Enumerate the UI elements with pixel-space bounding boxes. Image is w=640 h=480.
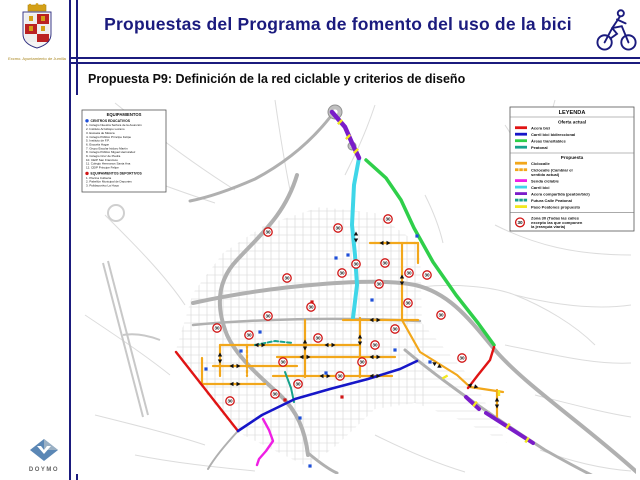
map-legend: LEYENDAOferta actualAcera biciCarril bic… — [510, 107, 634, 231]
legend-chip — [515, 146, 527, 149]
equipment-item: 12. CEIP Príncipe Felipe — [86, 166, 119, 170]
legend-chip — [524, 199, 528, 202]
legend-chip — [515, 179, 527, 182]
legend-item-label: Peatonal — [531, 145, 548, 150]
badge-text: 30 — [376, 282, 382, 287]
badge-text: 30 — [392, 327, 398, 332]
legend-chip — [515, 126, 527, 129]
equipment-panel: EQUIPAMIENTOSCENTROS EDUCATIVOS1. Colegi… — [82, 110, 166, 192]
zona-30-badge: 30 — [334, 224, 342, 232]
education-center-marker — [324, 371, 327, 374]
legend-section-label: Propuesta — [561, 155, 584, 160]
badge-text: 30 — [339, 271, 345, 276]
slide: Excmo. Ayuntamiento de Jumilla Propuesta… — [0, 0, 640, 480]
legend-zona30-badge-text: 30 — [517, 220, 523, 225]
badge-text: 30 — [424, 273, 430, 278]
legend-chip — [515, 205, 527, 208]
legend-item-label: Carril bici — [531, 185, 549, 190]
slide-subtitle: Propuesta P9: Definición de la red cicla… — [88, 72, 465, 86]
crest-graphic — [9, 3, 65, 51]
doymo-logo: DOYMO — [20, 438, 68, 473]
badge-text: 30 — [227, 399, 233, 404]
badge-text: 30 — [405, 301, 411, 306]
zona-30-badge: 30 — [338, 269, 346, 277]
legend-chip — [515, 186, 527, 189]
badge-text: 30 — [372, 343, 378, 348]
municipal-coat-of-arms: Excmo. Ayuntamiento de Jumilla — [8, 3, 66, 57]
crosswalk-mark — [498, 390, 500, 396]
legend-chip — [519, 168, 523, 171]
zona-30-badge: 30 — [371, 341, 379, 349]
badge-text: 30 — [382, 261, 388, 266]
education-center-marker — [298, 416, 301, 419]
legend-item-label: Acera bici — [531, 126, 550, 131]
badge-text: 30 — [459, 356, 465, 361]
section-bullet — [85, 119, 88, 122]
badge-text: 30 — [359, 360, 365, 365]
doymo-mark — [29, 438, 59, 462]
zona-30-badge: 30 — [226, 397, 234, 405]
badge-text: 30 — [246, 333, 252, 338]
zona-30-badge: 30 — [437, 311, 445, 319]
zona-30-badge: 30 — [404, 299, 412, 307]
badge-text: 30 — [265, 314, 271, 319]
legend-zona30-label: la jerarquía viaria) — [531, 224, 566, 229]
legend-chip — [515, 192, 527, 195]
zona-30-badge: 30 — [213, 324, 221, 332]
badge-text: 30 — [315, 336, 321, 341]
education-center-marker — [415, 234, 418, 237]
zona-30-badge: 30 — [307, 303, 315, 311]
zona-30-badge: 30 — [458, 354, 466, 362]
zona-30-badge: 30 — [279, 358, 287, 366]
badge-text: 30 — [214, 326, 220, 331]
legend-chip — [515, 168, 519, 171]
zona-30-badge: 30 — [405, 269, 413, 277]
badge-text: 30 — [406, 271, 412, 276]
legend-item-label: Carril bici bidireccional — [531, 132, 575, 137]
legend-item-label: sentido actual) — [531, 172, 560, 177]
education-center-marker — [204, 367, 207, 370]
zona-30-badge: 30 — [245, 331, 253, 339]
education-center-marker — [308, 464, 311, 467]
badge-text: 30 — [308, 305, 314, 310]
badge-text: 30 — [337, 374, 343, 379]
equipment-item: 3. Polideportivo La Hoya — [86, 184, 119, 188]
zona-30-badge: 30 — [314, 334, 322, 342]
header-double-rule — [71, 57, 640, 64]
legend-item-label: Futura Calle Peatonal — [531, 198, 572, 203]
zona-30-badge: 30 — [336, 372, 344, 380]
sports-facility-marker — [340, 395, 343, 398]
badge-text: 30 — [284, 276, 290, 281]
zona-30-badge: 30 — [384, 215, 392, 223]
zona-30-badge: 30 — [264, 312, 272, 320]
legend-item-label: Ciclocalle — [531, 161, 550, 166]
crest-caption: Excmo. Ayuntamiento de Jumilla — [8, 57, 66, 61]
sports-facility-marker — [283, 398, 286, 401]
zona-30-badge: 30 — [358, 358, 366, 366]
zona-30-badge: 30 — [375, 280, 383, 288]
legend-chip — [515, 199, 519, 202]
education-center-marker — [346, 253, 349, 256]
badge-text: 30 — [265, 230, 271, 235]
legend-item-label: Paso Peatones propuesto — [531, 204, 581, 209]
badge-text: 30 — [385, 217, 391, 222]
badge-text: 30 — [335, 226, 341, 231]
legend-chip — [515, 162, 527, 165]
education-center-marker — [258, 330, 261, 333]
section-bullet — [85, 172, 88, 175]
legend-chip — [515, 139, 527, 142]
zona-30-badge: 30 — [283, 274, 291, 282]
legend-chip — [515, 133, 527, 136]
page-title: Propuestas del Programa de fomento del u… — [88, 14, 588, 35]
zona-30-badge: 30 — [294, 380, 302, 388]
zona-30-badge: 30 — [264, 228, 272, 236]
badge-text: 30 — [353, 262, 359, 267]
badge-text: 30 — [280, 360, 286, 365]
zona-30-badge: 30 — [352, 260, 360, 268]
legend-chip — [524, 168, 528, 171]
badge-text: 30 — [438, 313, 444, 318]
cyclist-icon — [596, 7, 638, 53]
zona-30-badge: 30 — [271, 390, 279, 398]
zona-30-badge: 30 — [391, 325, 399, 333]
badge-text: 30 — [272, 392, 278, 397]
legend-item-label: Áreas transitables — [531, 139, 566, 144]
legend-section-label: Oferta actual — [558, 120, 586, 125]
city-map: 3030303030303030303030303030303030303030… — [75, 95, 636, 474]
equipment-panel-title: EQUIPAMIENTOS — [107, 112, 142, 117]
legend-item-label: Senda ciclable — [531, 178, 560, 183]
map-canvas: 3030303030303030303030303030303030303030… — [75, 95, 636, 474]
doymo-text: DOYMO — [20, 467, 68, 473]
education-center-marker — [334, 256, 337, 259]
zona-30-badge: 30 — [381, 259, 389, 267]
zona-30-badge: 30 — [423, 271, 431, 279]
education-center-marker — [370, 298, 373, 301]
badge-text: 30 — [295, 382, 301, 387]
legend-chip — [519, 199, 523, 202]
education-center-marker — [239, 349, 242, 352]
legend-item-label: Acera compartida (peatón/bici) — [531, 191, 590, 196]
legend-title: LEYENDA — [559, 110, 586, 116]
education-center-marker — [428, 360, 431, 363]
education-center-marker — [393, 348, 396, 351]
